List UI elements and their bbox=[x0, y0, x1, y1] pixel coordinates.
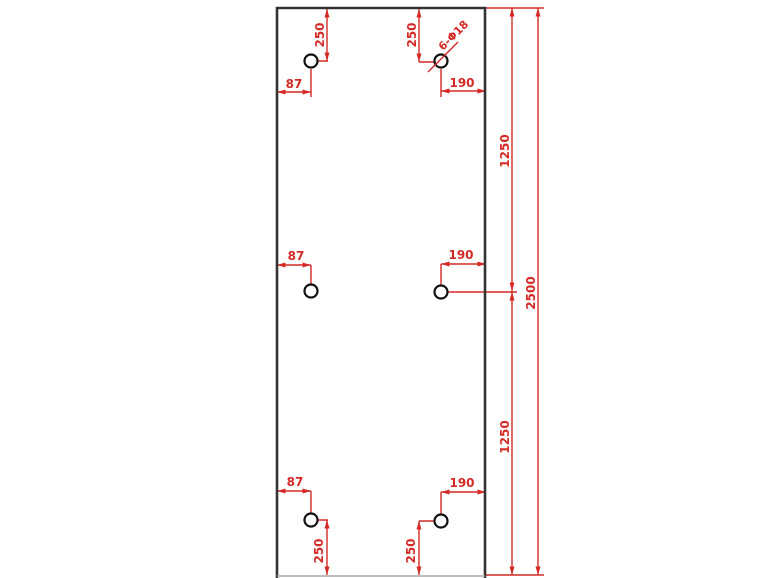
dim-text-top-190: 190 bbox=[449, 76, 474, 90]
dim-text-top-left-250: 250 bbox=[313, 22, 327, 47]
dim-text-top-right-250: 250 bbox=[405, 22, 419, 47]
bolt-holes bbox=[305, 55, 448, 528]
dim-text-right-lower-1250: 1250 bbox=[498, 420, 512, 453]
dim-text-top-87: 87 bbox=[286, 77, 303, 91]
hole-top-right bbox=[435, 55, 448, 68]
hole-mid-right bbox=[435, 286, 448, 299]
dim-text-bottom-right-250: 250 bbox=[404, 538, 418, 563]
dim-text-mid-190: 190 bbox=[448, 248, 473, 262]
cad-drawing-canvas: 250 250 87 190 6-Φ18 1250 2500 1250 87 1… bbox=[0, 0, 770, 578]
hole-bottom-right bbox=[435, 515, 448, 528]
dim-text-right-2500: 2500 bbox=[524, 276, 538, 309]
dimension-texts: 250 250 87 190 6-Φ18 1250 2500 1250 87 1… bbox=[286, 18, 538, 564]
plate-drawing: 250 250 87 190 6-Φ18 1250 2500 1250 87 1… bbox=[0, 0, 770, 578]
hole-callout-text: 6-Φ18 bbox=[436, 18, 471, 53]
dim-text-bottom-left-250: 250 bbox=[312, 538, 326, 563]
hole-bottom-left bbox=[305, 514, 318, 527]
dim-text-mid-87: 87 bbox=[288, 249, 305, 263]
dim-text-bottom-87: 87 bbox=[287, 475, 304, 489]
hole-mid-left bbox=[305, 285, 318, 298]
hole-top-left bbox=[305, 55, 318, 68]
dim-text-bottom-190: 190 bbox=[449, 476, 474, 490]
dim-text-right-upper-1250: 1250 bbox=[498, 134, 512, 167]
